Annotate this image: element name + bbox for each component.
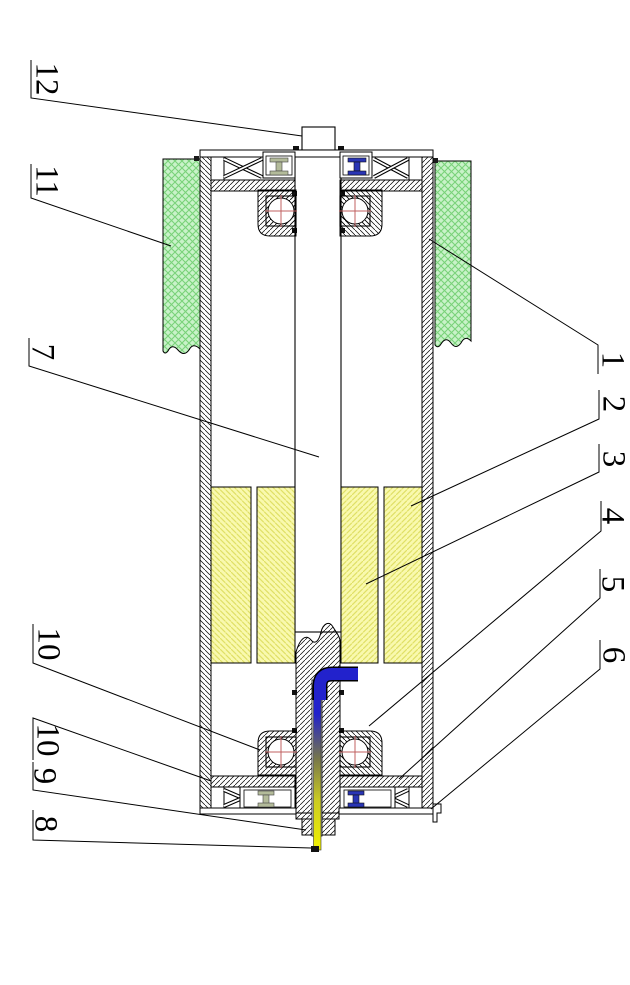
drum-wall-right: [422, 152, 433, 808]
callout-11: 11: [28, 165, 64, 197]
seal-top-left: [263, 152, 295, 178]
callout-3: 3: [595, 451, 630, 468]
brace-top-left: [224, 159, 262, 177]
lagging-left: [163, 159, 200, 354]
callout-10-b: 10: [29, 724, 65, 757]
corner-tick-right: [433, 158, 438, 163]
callout-1: 1: [594, 352, 630, 369]
seal-bottom-left: [240, 787, 295, 809]
patent-figure-svg: 12 11 7 10 10 9 8 1 2 3 4 5 6: [0, 0, 630, 980]
callout-9: 9: [26, 768, 62, 785]
callout-8: 8: [27, 816, 63, 833]
callout-4: 4: [594, 508, 630, 525]
brace-top-right: [374, 159, 408, 177]
callout-12: 12: [28, 63, 64, 96]
bearing-top-right: [339, 190, 382, 236]
callout-5: 5: [594, 576, 630, 593]
bearing-bottom-left: [258, 731, 297, 775]
shaft: [292, 127, 345, 632]
bearing-bottom-right: [339, 731, 382, 775]
callout-6: 6: [595, 647, 630, 664]
corner-tick-left: [194, 156, 199, 161]
seal-bottom-right: [340, 787, 395, 809]
callout-2: 2: [595, 396, 630, 413]
seal-top-right: [340, 152, 372, 178]
callout-10-a: 10: [30, 628, 66, 661]
drum-wall-left: [200, 152, 211, 808]
callout-7: 7: [24, 344, 60, 361]
bearing-top-left: [258, 190, 297, 236]
cable-tip-tick: [311, 846, 319, 852]
technical-drawing-canvas: 12 11 7 10 10 9 8 1 2 3 4 5 6: [0, 0, 630, 980]
